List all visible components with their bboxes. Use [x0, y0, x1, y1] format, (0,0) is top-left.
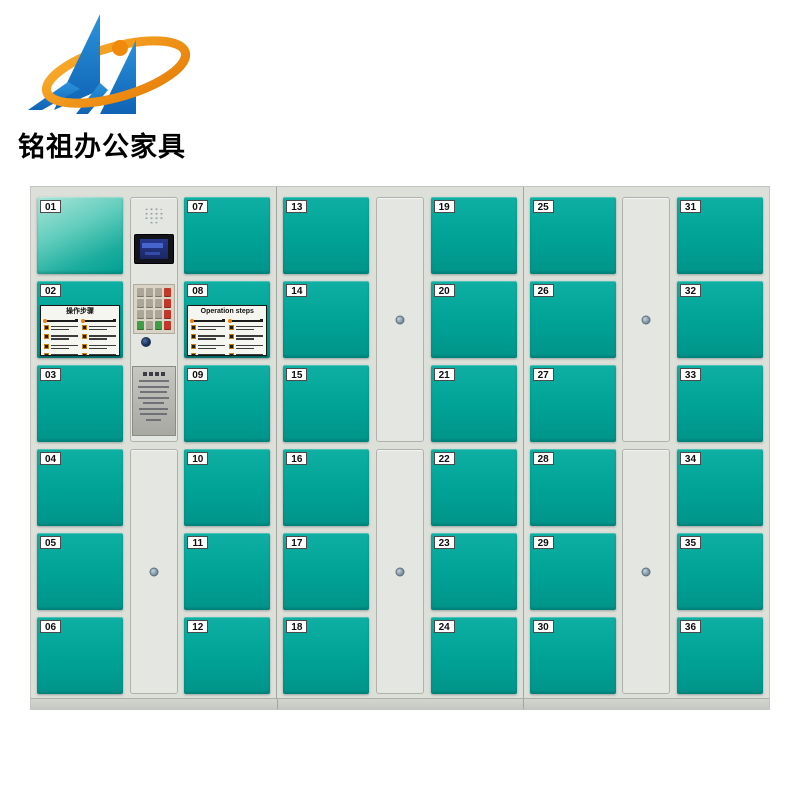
brand-name: 铭祖办公家具 — [18, 125, 238, 164]
door-column: 0708Operation steps09101112 — [184, 197, 270, 694]
locker-door-11: 11 — [184, 533, 270, 610]
door-number: 35 — [680, 536, 701, 549]
locker-door-06: 06 — [37, 617, 123, 694]
door-number: 27 — [533, 368, 554, 381]
door-number: 33 — [680, 368, 701, 381]
locker-door-02: 02操作步骤 — [37, 281, 123, 358]
lcd-screen — [140, 239, 168, 259]
locker-door-04: 04 — [37, 449, 123, 526]
lcd-display — [134, 234, 174, 264]
keypad-key — [164, 288, 171, 297]
door-number: 15 — [286, 368, 307, 381]
step-number-bullet — [44, 353, 49, 356]
step-number-bullet — [191, 325, 196, 330]
operation-steps-panel: Operation steps — [187, 305, 267, 356]
locker-door-19: 19 — [431, 197, 517, 274]
door-number: 19 — [434, 200, 455, 213]
page: 铭祖办公家具 0102操作步骤030405060708Operation ste… — [0, 0, 800, 800]
door-number: 21 — [434, 368, 455, 381]
cabinet-row: 0102操作步骤030405060708Operation steps09101… — [31, 187, 769, 698]
blank-panel — [376, 449, 424, 694]
step-number-bullet — [44, 325, 49, 330]
step-number-bullet — [82, 334, 87, 339]
door-number: 16 — [286, 452, 307, 465]
door-number: 12 — [187, 620, 208, 633]
step-number-bullet — [82, 325, 87, 330]
door-number: 08 — [187, 284, 208, 297]
door-number: 26 — [533, 284, 554, 297]
locker-door-05: 05 — [37, 533, 123, 610]
keypad-key — [146, 288, 153, 297]
step-number-bullet — [191, 344, 196, 349]
locker-door-33: 33 — [677, 365, 763, 442]
door-number: 29 — [533, 536, 554, 549]
door-number: 06 — [40, 620, 61, 633]
instruction-plate — [132, 366, 176, 436]
door-number: 22 — [434, 452, 455, 465]
locker-door-35: 35 — [677, 533, 763, 610]
locker-door-23: 23 — [431, 533, 517, 610]
door-column: 192021222324 — [431, 197, 517, 694]
steps-item — [191, 325, 225, 332]
door-number: 05 — [40, 536, 61, 549]
speaker-icon — [143, 206, 165, 224]
steps-columns — [190, 317, 264, 356]
steps-item — [82, 344, 116, 351]
step-number-bullet — [191, 334, 196, 339]
door-number: 34 — [680, 452, 701, 465]
operation-steps-panel: 操作步骤 — [40, 305, 120, 356]
steps-item — [44, 325, 78, 332]
step-number-bullet — [82, 353, 87, 356]
door-number: 28 — [533, 452, 554, 465]
blank-panel — [130, 449, 178, 694]
lock-icon — [642, 315, 651, 324]
keypad-key — [164, 299, 171, 308]
keypad-key — [155, 321, 162, 330]
lock-icon — [395, 315, 404, 324]
cabinet-2: 131415161718192021222324 — [277, 187, 523, 698]
door-number: 17 — [286, 536, 307, 549]
keypad-key — [137, 310, 144, 319]
steps-item — [229, 325, 263, 332]
keypad-key — [137, 321, 144, 330]
locker-door-12: 12 — [184, 617, 270, 694]
locker-door-31: 31 — [677, 197, 763, 274]
steps-item — [191, 334, 225, 341]
locker-door-21: 21 — [431, 365, 517, 442]
locker-door-30: 30 — [530, 617, 616, 694]
door-number: 36 — [680, 620, 701, 633]
brand-logo: 铭祖办公家具 — [18, 6, 238, 164]
locker-door-18: 18 — [283, 617, 369, 694]
door-number: 09 — [187, 368, 208, 381]
blank-column — [376, 197, 424, 694]
lock-icon — [395, 567, 404, 576]
cabinet-1: 0102操作步骤030405060708Operation steps09101… — [31, 187, 277, 698]
steps-item — [44, 344, 78, 351]
steps-title: Operation steps — [190, 307, 264, 316]
locker-door-16: 16 — [283, 449, 369, 526]
steps-divider — [82, 317, 116, 322]
lock-icon — [149, 567, 158, 576]
locker-door-29: 29 — [530, 533, 616, 610]
blank-column — [622, 197, 670, 694]
keypad-key — [155, 288, 162, 297]
keypad-key — [146, 299, 153, 308]
door-number: 25 — [533, 200, 554, 213]
steps-item — [44, 334, 78, 341]
lock-icon — [642, 567, 651, 576]
blank-panel — [622, 449, 670, 694]
locker-door-07: 07 — [184, 197, 270, 274]
step-number-bullet — [191, 353, 196, 356]
control-column — [130, 197, 178, 694]
steps-item — [229, 353, 263, 356]
locker-door-15: 15 — [283, 365, 369, 442]
keypad-key — [164, 321, 171, 330]
step-number-bullet — [229, 334, 234, 339]
door-number: 23 — [434, 536, 455, 549]
locker-door-34: 34 — [677, 449, 763, 526]
locker-door-24: 24 — [431, 617, 517, 694]
blank-panel — [622, 197, 670, 442]
step-number-bullet — [229, 353, 234, 356]
door-number: 31 — [680, 200, 701, 213]
locker-door-13: 13 — [283, 197, 369, 274]
door-number: 11 — [187, 536, 208, 549]
locker-door-20: 20 — [431, 281, 517, 358]
door-number: 10 — [187, 452, 208, 465]
keypad-key — [137, 288, 144, 297]
steps-divider — [44, 317, 78, 322]
keypad — [133, 284, 175, 334]
door-number: 20 — [434, 284, 455, 297]
locker-door-32: 32 — [677, 281, 763, 358]
steps-divider — [229, 317, 263, 322]
door-column: 313233343536 — [677, 197, 763, 694]
steps-columns — [43, 317, 117, 356]
locker-door-22: 22 — [431, 449, 517, 526]
steps-item — [191, 353, 225, 356]
locker-door-27: 27 — [530, 365, 616, 442]
locker-door-25: 25 — [530, 197, 616, 274]
steps-item — [82, 334, 116, 341]
door-number: 24 — [434, 620, 455, 633]
steps-item — [229, 334, 263, 341]
door-number: 18 — [286, 620, 307, 633]
locker-door-17: 17 — [283, 533, 369, 610]
steps-item — [229, 344, 263, 351]
door-number: 01 — [40, 200, 61, 213]
step-number-bullet — [229, 344, 234, 349]
logo-mark-icon — [18, 6, 218, 118]
door-column: 252627282930 — [530, 197, 616, 694]
keypad-key — [164, 310, 171, 319]
control-panel — [130, 197, 178, 442]
steps-divider — [191, 317, 225, 322]
locker-door-03: 03 — [37, 365, 123, 442]
keypad-key — [146, 321, 153, 330]
steps-item — [82, 325, 116, 332]
step-number-bullet — [82, 344, 87, 349]
blank-panel — [376, 197, 424, 442]
camera-icon — [141, 337, 151, 347]
steps-item — [82, 353, 116, 356]
locker-door-14: 14 — [283, 281, 369, 358]
door-column: 131415161718 — [283, 197, 369, 694]
keypad-key — [155, 310, 162, 319]
steps-item — [44, 353, 78, 356]
keypad-key — [137, 299, 144, 308]
locker-door-08: 08Operation steps — [184, 281, 270, 358]
locker-door-10: 10 — [184, 449, 270, 526]
door-number: 07 — [187, 200, 208, 213]
locker-door-09: 09 — [184, 365, 270, 442]
locker-base — [31, 698, 769, 709]
keypad-key — [155, 299, 162, 308]
steps-item — [191, 344, 225, 351]
step-number-bullet — [229, 325, 234, 330]
step-number-bullet — [44, 334, 49, 339]
door-number: 30 — [533, 620, 554, 633]
door-number: 02 — [40, 284, 61, 297]
locker-unit: 0102操作步骤030405060708Operation steps09101… — [30, 186, 770, 710]
locker-door-01: 01 — [37, 197, 123, 274]
door-column: 0102操作步骤03040506 — [37, 197, 123, 694]
step-number-bullet — [44, 344, 49, 349]
door-number: 32 — [680, 284, 701, 297]
locker-door-28: 28 — [530, 449, 616, 526]
door-number: 03 — [40, 368, 61, 381]
locker-door-26: 26 — [530, 281, 616, 358]
steps-title: 操作步骤 — [43, 307, 117, 316]
door-number: 04 — [40, 452, 61, 465]
door-number: 14 — [286, 284, 307, 297]
cabinet-3: 252627282930313233343536 — [524, 187, 769, 698]
door-number: 13 — [286, 200, 307, 213]
keypad-key — [146, 310, 153, 319]
locker-door-36: 36 — [677, 617, 763, 694]
